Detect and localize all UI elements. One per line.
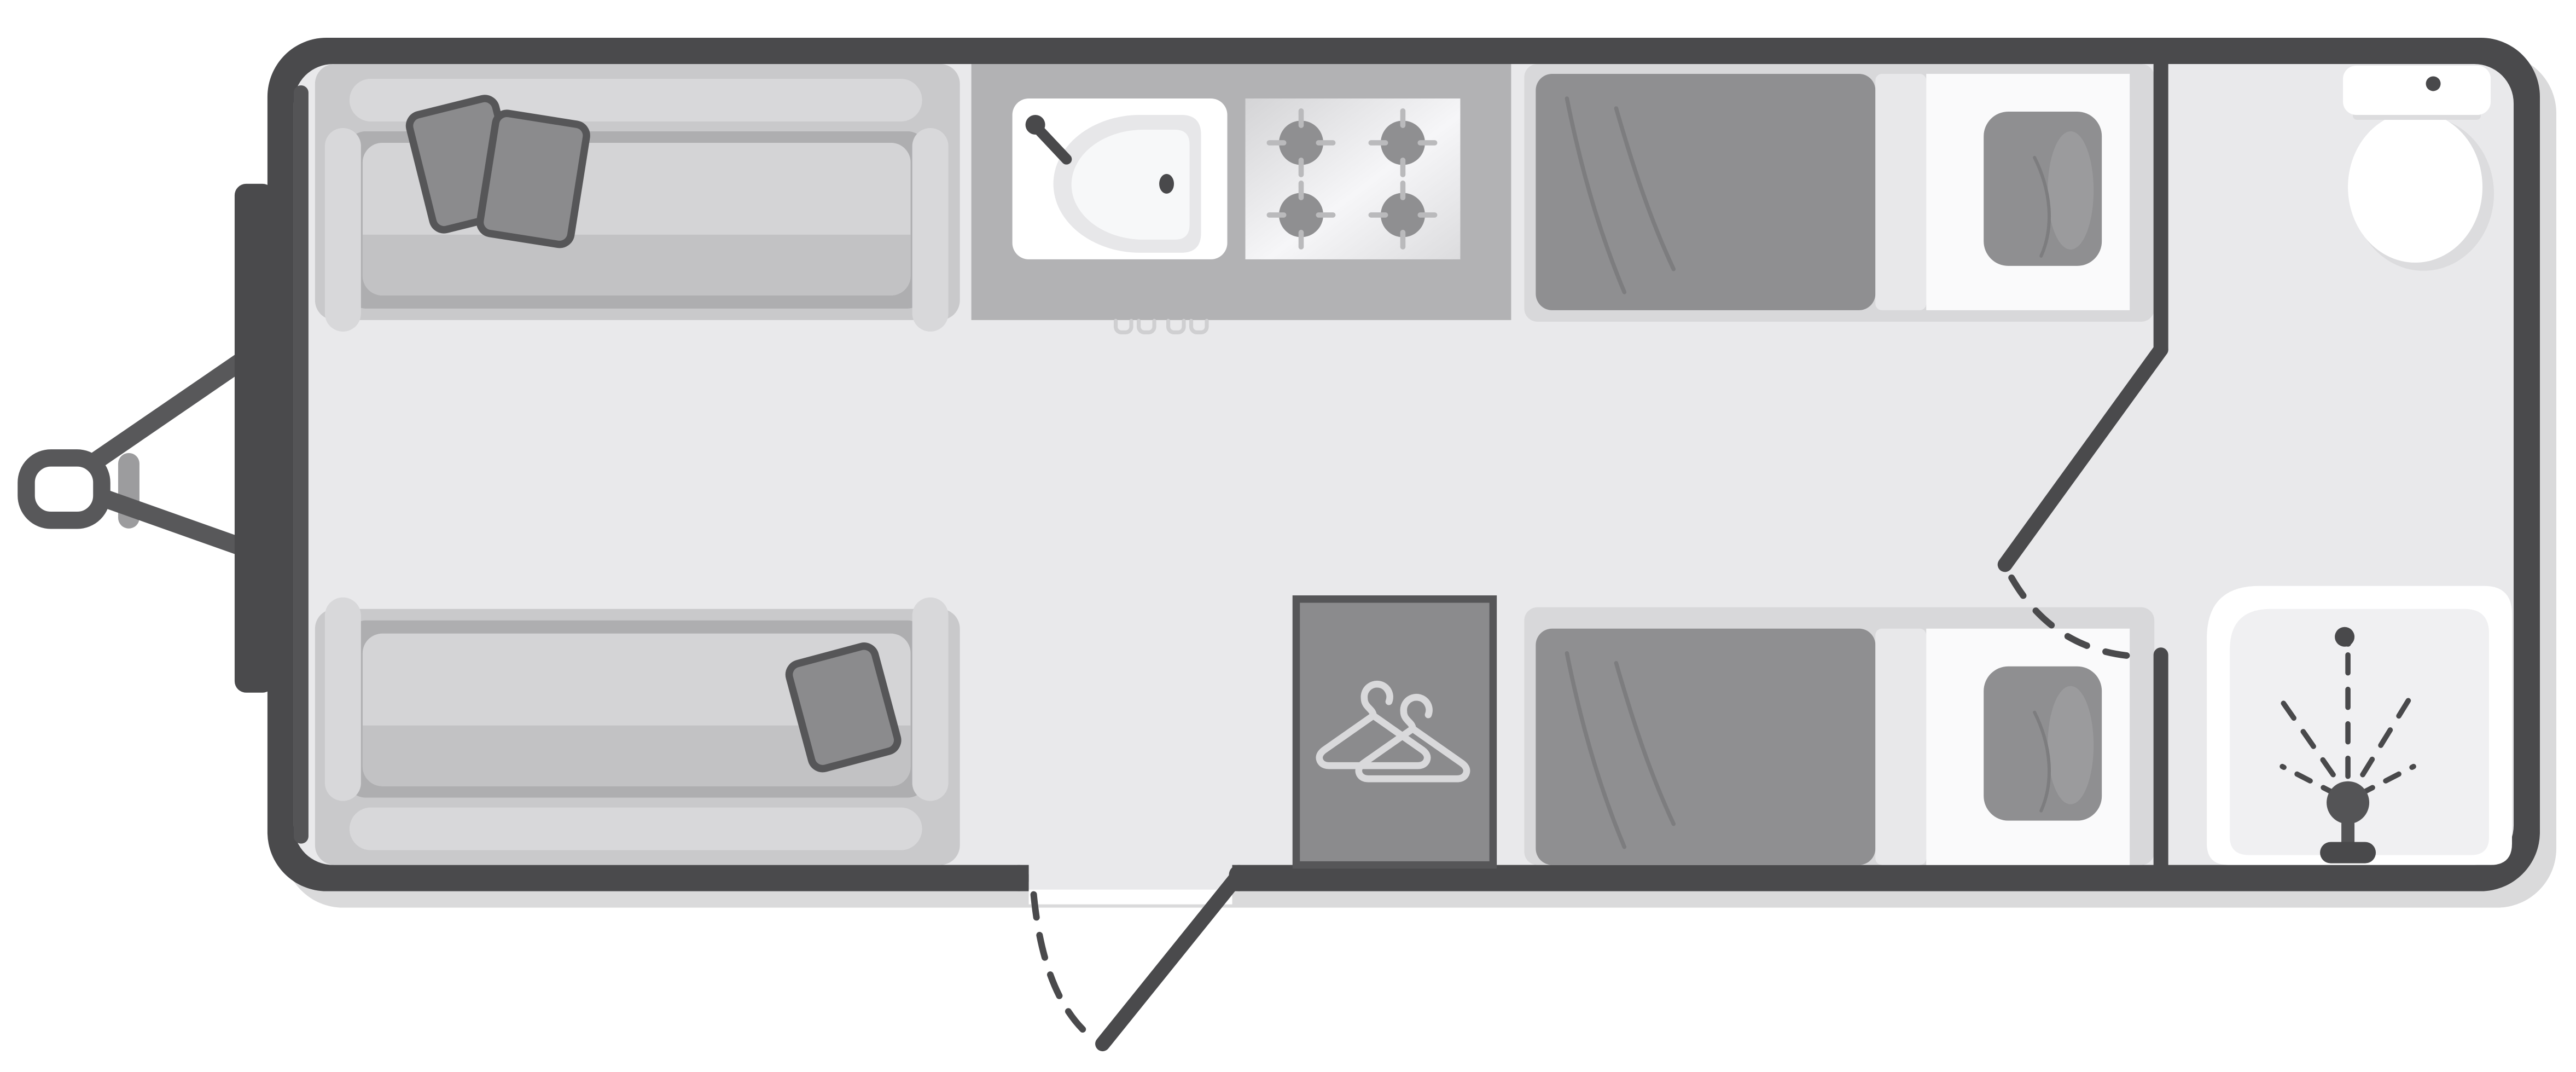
door-opening — [1029, 860, 1232, 895]
sofa-armrest-left — [325, 128, 361, 332]
duvet-folded-edge — [1875, 629, 1926, 865]
shower-head-base — [2320, 842, 2376, 864]
sofa-backrest — [350, 808, 922, 850]
single-bed-top — [1524, 64, 2154, 322]
sofa-armrest-left — [325, 598, 361, 801]
sofa-armrest-right — [912, 128, 949, 332]
caravan-floorplan-canvas — [0, 0, 2576, 1072]
wall-end-cap — [1009, 865, 1029, 891]
flush-button — [2426, 76, 2441, 91]
wardrobe-with-hangers — [1296, 599, 1493, 865]
hob-4-burner — [1246, 98, 1461, 259]
spray-dot — [2345, 640, 2351, 647]
sink-drain — [1159, 174, 1174, 194]
toilet-cistern — [2343, 66, 2491, 115]
kitchen-counter — [972, 64, 1511, 332]
hob-panel — [1246, 98, 1461, 259]
shower-drain — [2335, 627, 2354, 647]
bed-duvet — [1536, 74, 1875, 310]
front-bumper — [235, 184, 274, 693]
pillow-highlight — [2048, 131, 2094, 250]
sofa-armrest-right — [912, 598, 949, 801]
front-sofa-bottom — [315, 598, 960, 865]
entry-door-swing-arc — [1034, 895, 1090, 1036]
sink-unit — [1013, 98, 1228, 259]
front-sofa-top — [315, 64, 960, 332]
pillow-highlight — [2048, 686, 2094, 804]
duvet-folded-edge — [1875, 74, 1926, 310]
single-bed-bottom — [1524, 607, 2154, 865]
front-wall-inner-shading — [294, 85, 309, 844]
toilet-bowl — [2348, 112, 2482, 263]
entry-door-open — [1009, 860, 1249, 1044]
door-opening-outside — [1029, 890, 1232, 905]
shower-head-icon — [2327, 781, 2369, 824]
sofa-cushion-shading — [363, 235, 911, 295]
bed-duvet — [1536, 629, 1875, 865]
scatter-cushion — [478, 112, 588, 246]
shower — [2207, 586, 2512, 865]
tap-icon — [1026, 115, 1045, 135]
hitch-coupling-ring — [26, 458, 102, 520]
